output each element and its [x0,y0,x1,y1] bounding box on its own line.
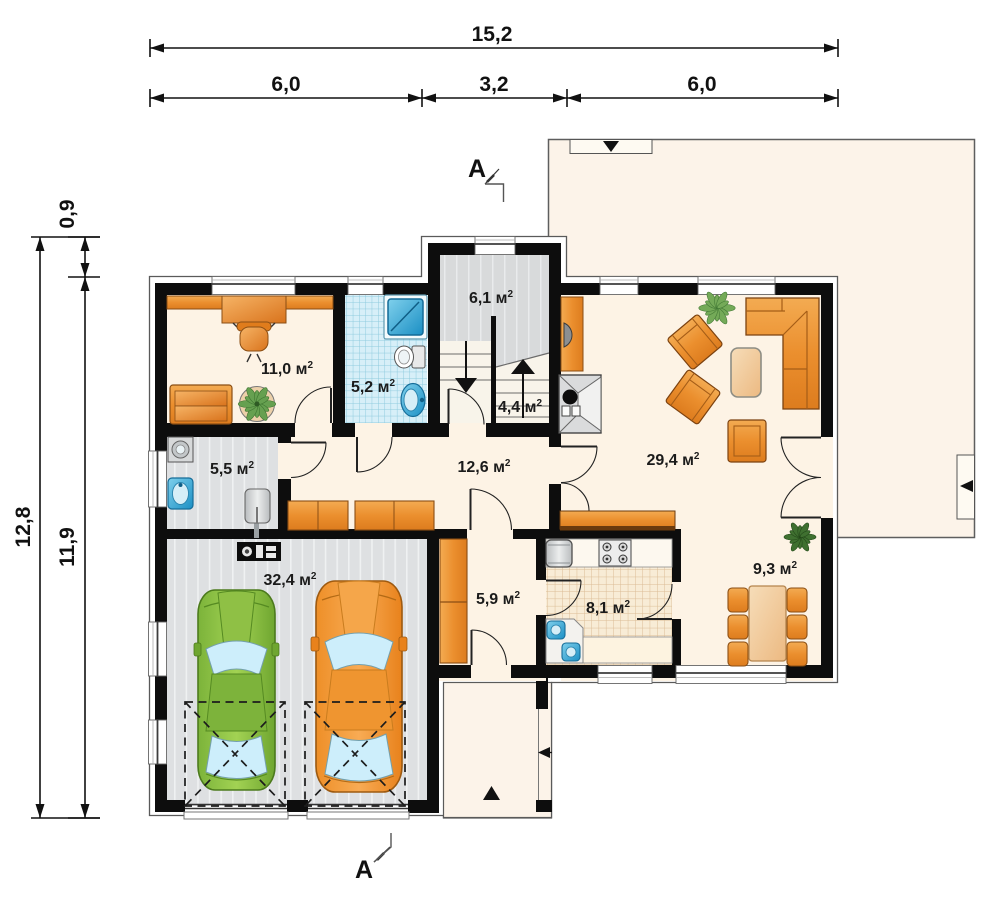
svg-text:4,4 м2: 4,4 м2 [498,398,543,416]
svg-text:12,6 м2: 12,6 м2 [458,458,511,476]
svg-text:5,5 м2: 5,5 м2 [210,460,255,478]
svg-text:8,1 м2: 8,1 м2 [586,599,631,617]
svg-text:6,1 м2: 6,1 м2 [469,289,514,307]
svg-text:9,3 м2: 9,3 м2 [753,560,798,578]
svg-text:3,2: 3,2 [479,73,508,96]
svg-text:6,0: 6,0 [687,73,716,96]
svg-text:32,4 м2: 32,4 м2 [264,571,317,589]
svg-text:A: A [355,856,373,884]
svg-text:5,2 м2: 5,2 м2 [351,378,396,396]
svg-text:A: A [468,155,486,183]
svg-text:12,8: 12,8 [12,506,35,547]
svg-text:6,0: 6,0 [271,73,300,96]
svg-text:0,9: 0,9 [56,199,79,228]
svg-text:29,4 м2: 29,4 м2 [647,451,700,469]
svg-text:5,9 м2: 5,9 м2 [476,590,521,608]
svg-text:11,9: 11,9 [56,527,79,567]
svg-text:11,0 м2: 11,0 м2 [261,360,314,378]
svg-text:15,2: 15,2 [472,23,513,46]
